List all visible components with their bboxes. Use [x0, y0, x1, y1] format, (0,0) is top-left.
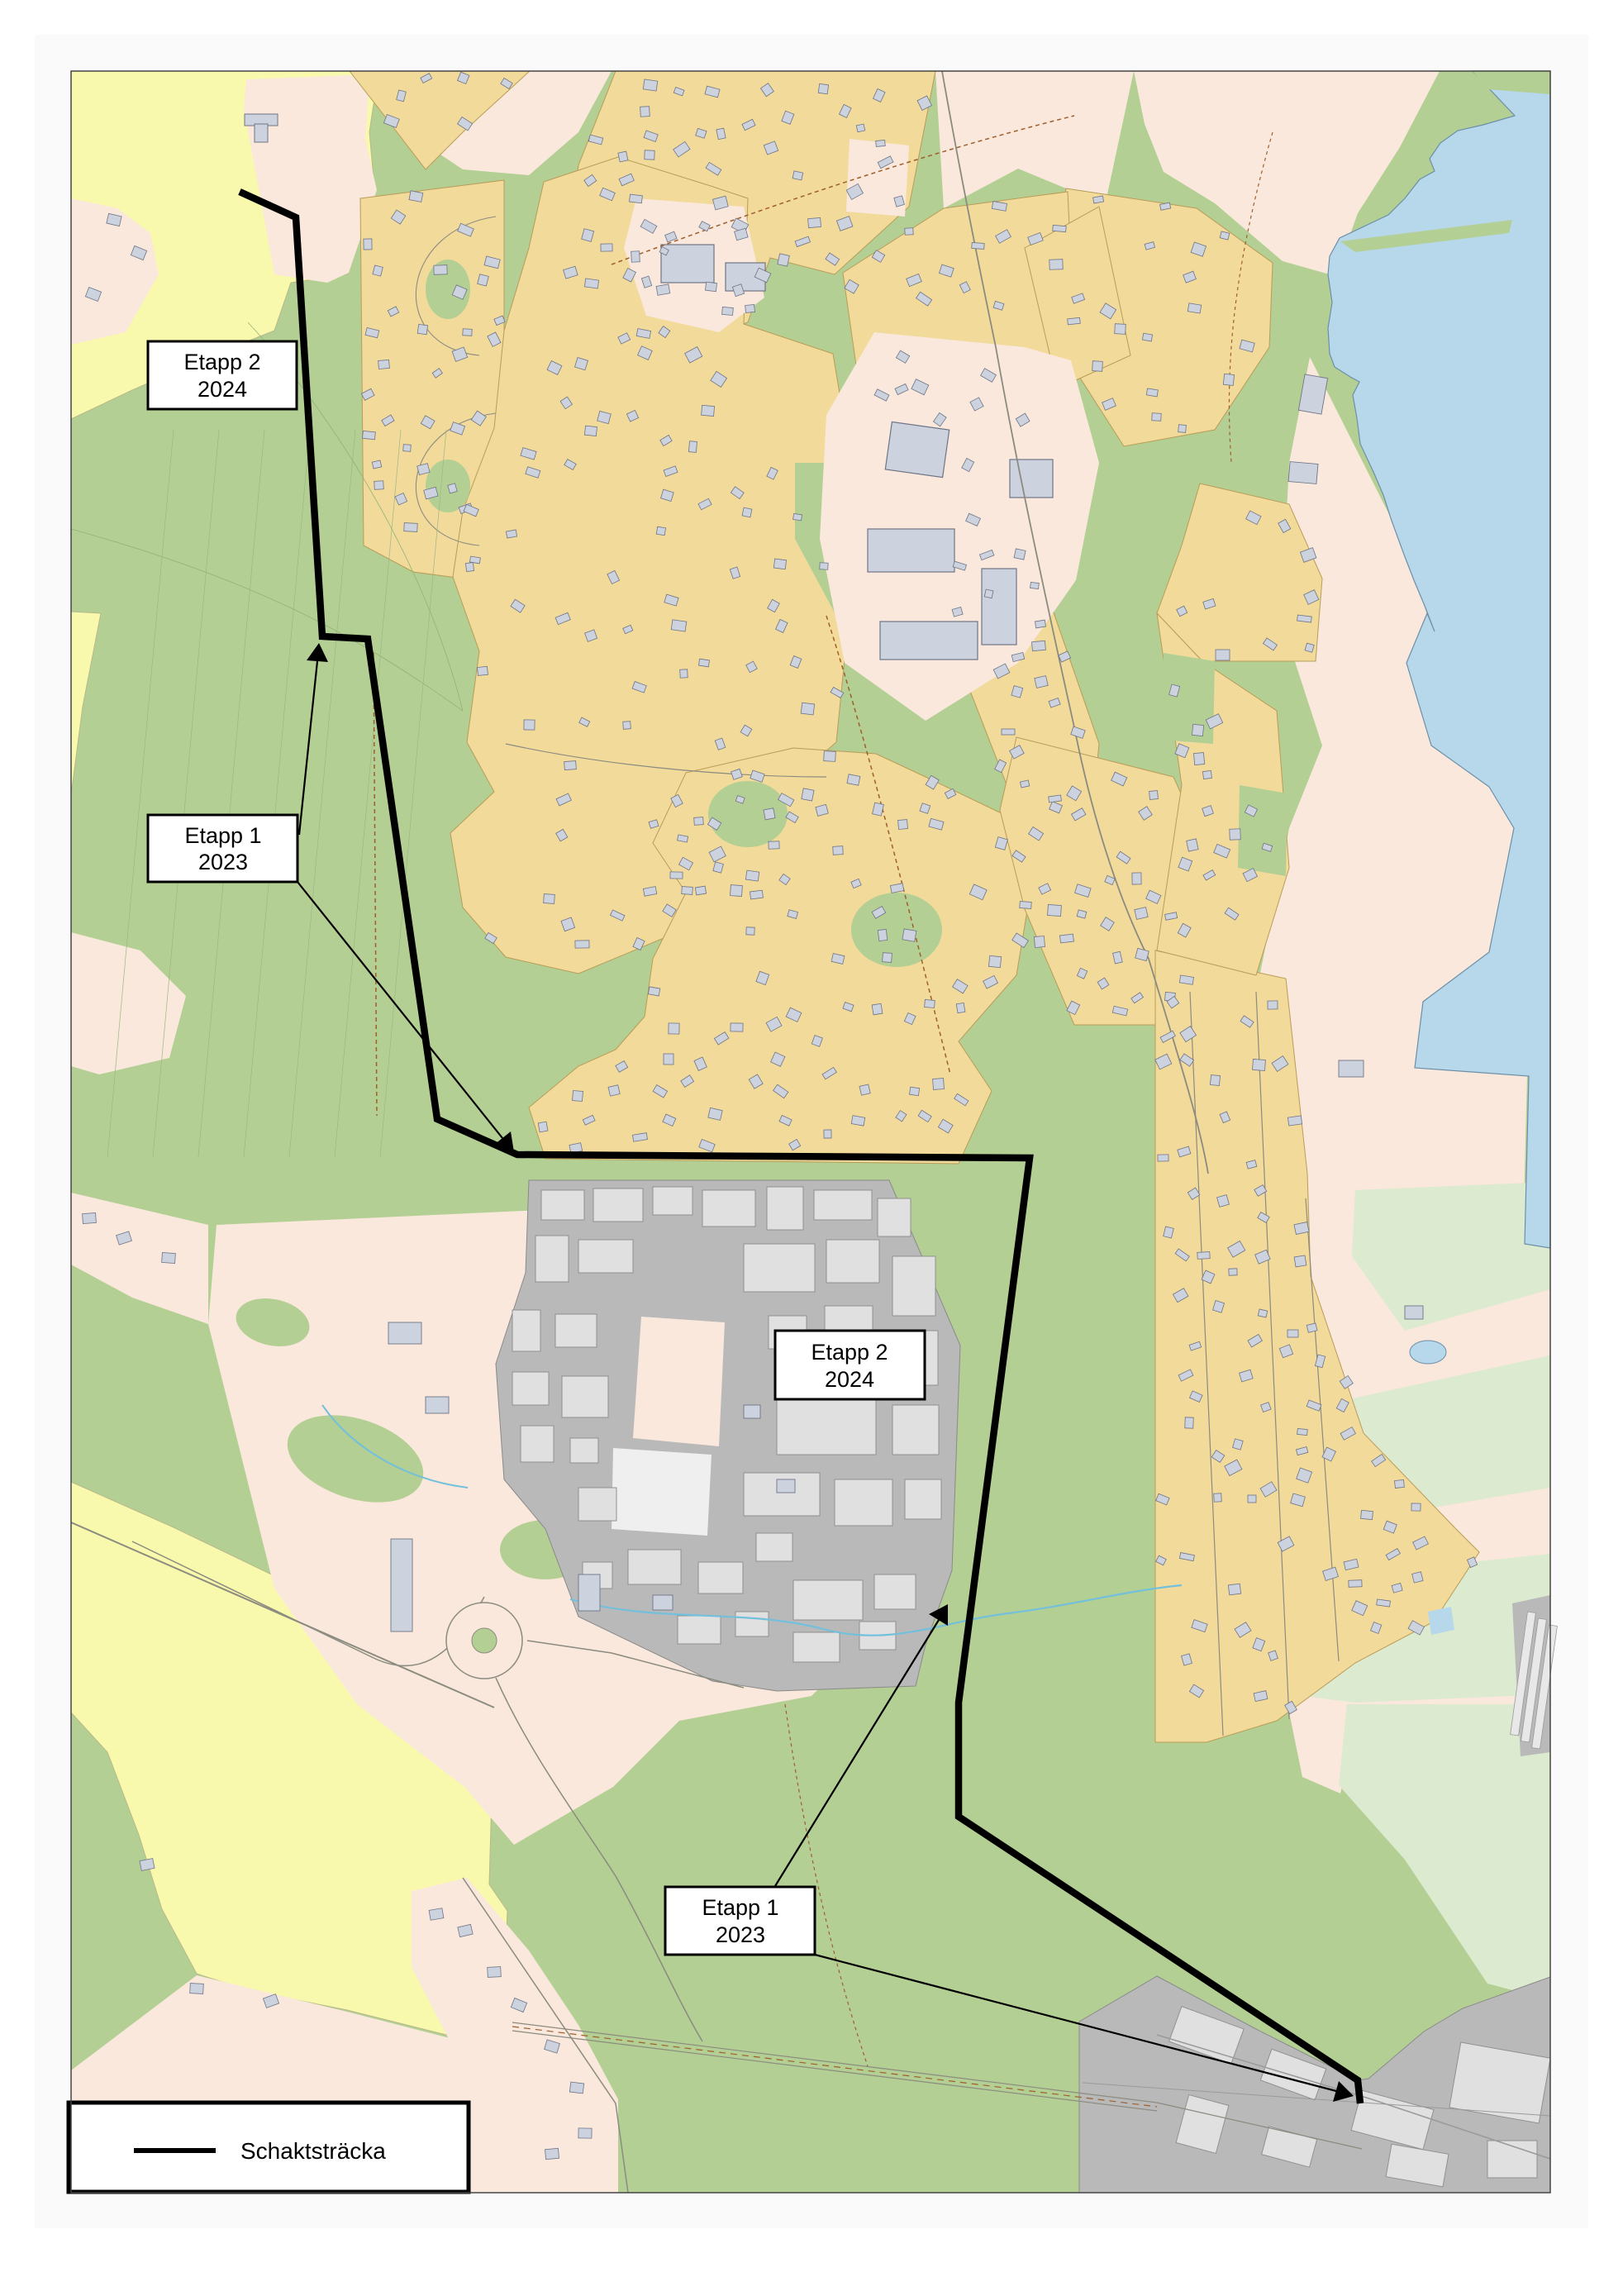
svg-text:Etapp 2: Etapp 2	[183, 350, 260, 374]
svg-text:2024: 2024	[825, 1367, 874, 1392]
svg-text:2023: 2023	[716, 1922, 765, 1947]
svg-text:Etapp 1: Etapp 1	[702, 1895, 778, 1920]
svg-text:2024: 2024	[198, 377, 247, 402]
svg-text:Etapp 1: Etapp 1	[184, 823, 261, 848]
svg-text:2023: 2023	[198, 850, 248, 874]
svg-text:Etapp 2: Etapp 2	[811, 1340, 888, 1365]
svg-text:Schaktsträcka: Schaktsträcka	[240, 2138, 386, 2164]
